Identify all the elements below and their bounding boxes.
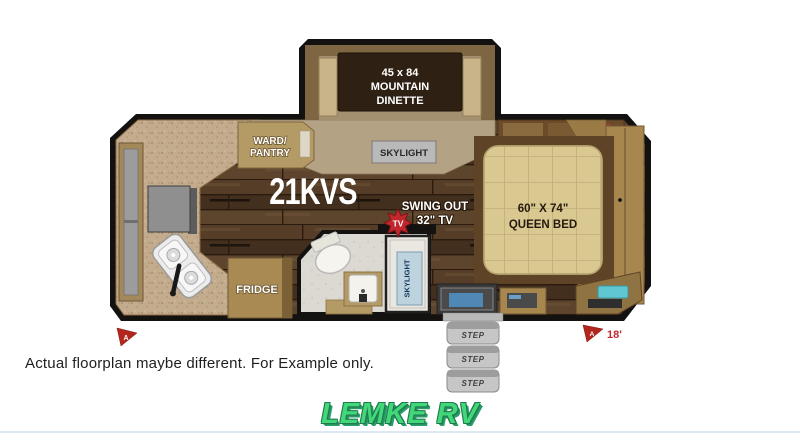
fridge: FRIDGE bbox=[228, 258, 292, 318]
step-2: STEP bbox=[447, 346, 499, 368]
awning-left-letter: A bbox=[123, 335, 128, 342]
skylight-label-dinette: SKYLIGHT bbox=[372, 141, 436, 163]
bed-name-label: QUEEN BED bbox=[509, 219, 577, 231]
awning-marker-left: A bbox=[117, 328, 137, 346]
shower: SKYLIGHT bbox=[386, 236, 429, 312]
ward-label-2: PANTRY bbox=[250, 148, 290, 159]
ward-label-1: WARD/ bbox=[253, 136, 287, 147]
skylight-bath-text: SKYLIGHT bbox=[403, 259, 412, 297]
dinette-name-label-1: MOUNTAIN bbox=[371, 81, 430, 93]
skylight-dinette-text: SKYLIGHT bbox=[380, 148, 428, 159]
disclaimer-text: Actual floorplan maybe different. For Ex… bbox=[25, 355, 445, 372]
bottom-divider bbox=[0, 431, 800, 433]
step-1-label: STEP bbox=[462, 331, 485, 340]
step-3: STEP bbox=[447, 370, 499, 392]
awning-marker-right: A 18' bbox=[583, 325, 622, 342]
fridge-label: FRIDGE bbox=[236, 284, 278, 296]
swing-out-label-2: 32" TV bbox=[417, 215, 453, 227]
dinette-slide: 45 x 84 MOUNTAIN DINETTE bbox=[305, 45, 495, 120]
entry-steps: STEP STEP STEP bbox=[443, 313, 503, 392]
brand-logo: LEMKE RV bbox=[321, 398, 479, 431]
dinette-bench-right bbox=[463, 58, 481, 116]
step-1: STEP bbox=[447, 322, 499, 344]
screenshot-root: 45 x 84 MOUNTAIN DINETTE SKYLIGHT bbox=[0, 0, 800, 436]
tv-badge-text: TV bbox=[393, 219, 404, 229]
bath-vanity bbox=[344, 272, 382, 306]
bathroom: SKYLIGHT bbox=[299, 224, 436, 314]
awning-right-letter: A bbox=[590, 331, 595, 338]
model-label: 21KVS bbox=[269, 172, 357, 213]
dinette-name-label-2: DINETTE bbox=[376, 95, 423, 107]
swing-out-label-1: SWING OUT bbox=[402, 201, 468, 213]
dinette-bench-left bbox=[319, 58, 337, 116]
entry-area bbox=[437, 284, 546, 314]
step-3-label: STEP bbox=[462, 379, 485, 388]
dinette-size-label: 45 x 84 bbox=[382, 67, 420, 79]
bed-size-label: 60" X 74" bbox=[518, 203, 569, 215]
awning-length-label: 18' bbox=[607, 329, 622, 341]
queen-bed: 60" X 74" QUEEN BED bbox=[484, 146, 602, 274]
wardrobe-pantry: WARD/ PANTRY bbox=[238, 122, 314, 168]
step-2-label: STEP bbox=[462, 355, 485, 364]
